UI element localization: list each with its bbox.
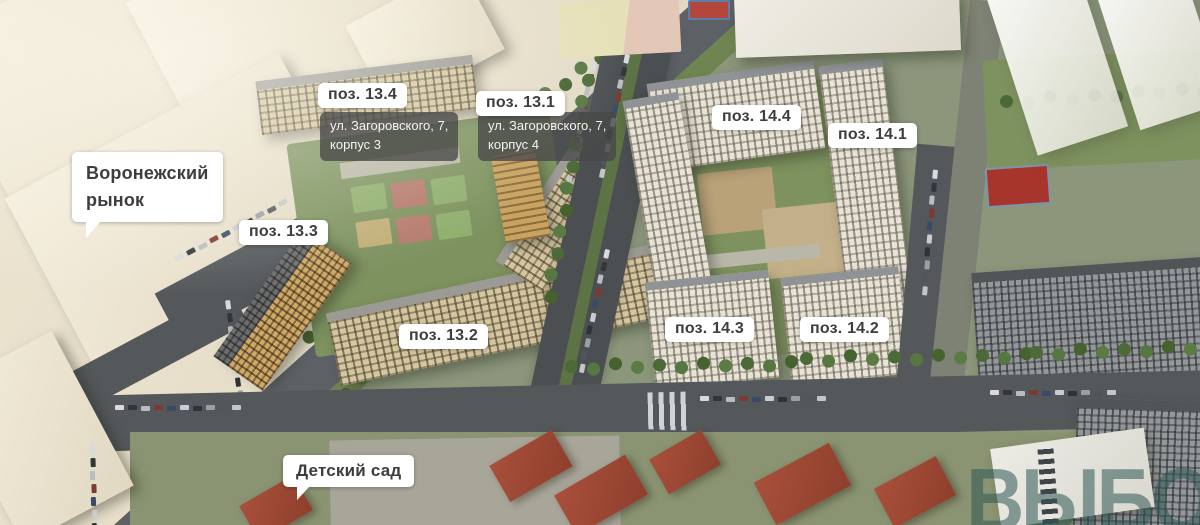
market-label-line2: рынок <box>86 190 144 210</box>
label-pointer-tail <box>297 486 310 500</box>
label-pos-14-1[interactable]: поз. 14.1 <box>828 123 917 148</box>
address-line1: ул. Загоровского, 7, <box>488 118 606 133</box>
label-pos-13-4[interactable]: поз. 13.4 <box>318 83 407 108</box>
label-pos-14-3[interactable]: поз. 14.3 <box>665 317 754 342</box>
existing-gray-building <box>971 257 1200 388</box>
address-line2: корпус 4 <box>488 137 539 152</box>
label-pos-14-2[interactable]: поз. 14.2 <box>800 317 889 342</box>
address-line1: ул. Загоровского, 7, <box>330 118 448 133</box>
sports-court-red <box>985 164 1052 208</box>
label-voronezh-market[interactable]: Воронежский рынок <box>72 152 223 222</box>
south-parked-cars <box>90 445 95 454</box>
vybor-watermark: ВЫБОР <box>966 456 1200 525</box>
label-pos-13-1[interactable]: поз. 13.1 <box>476 91 565 116</box>
label-pos-13-3[interactable]: поз. 13.3 <box>239 220 328 245</box>
rooftop-sports-court <box>688 0 730 20</box>
street-cars <box>700 396 709 401</box>
label-pointer-tail <box>86 220 102 238</box>
street-cars <box>115 405 124 410</box>
address-line2: корпус 3 <box>330 137 381 152</box>
market-label-line1: Воронежский <box>86 163 209 183</box>
aerial-site-plan: Воронежский рынок поз. 13.4 ул. Загоровс… <box>0 0 1200 525</box>
street-cars <box>990 390 999 395</box>
label-address-korpus-4[interactable]: ул. Загоровского, 7, корпус 4 <box>478 112 616 161</box>
label-address-korpus-3[interactable]: ул. Загоровского, 7, корпус 3 <box>320 112 458 161</box>
kindergarten-label-text: Детский сад <box>296 461 401 480</box>
label-pos-13-2[interactable]: поз. 13.2 <box>399 324 488 349</box>
label-kindergarten[interactable]: Детский сад <box>283 455 414 487</box>
street-parked-cars <box>225 300 231 310</box>
east-parked-cars <box>932 170 938 179</box>
label-pos-14-4[interactable]: поз. 14.4 <box>712 105 801 130</box>
school-building <box>734 0 961 58</box>
